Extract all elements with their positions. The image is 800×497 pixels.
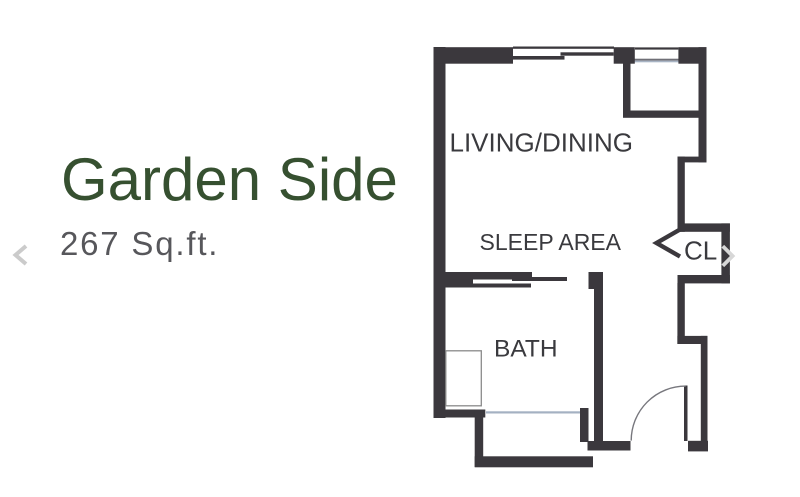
svg-text:267 Sq.ft.: 267 Sq.ft. <box>60 225 219 262</box>
svg-text:LIVING/DINING: LIVING/DINING <box>450 128 633 158</box>
svg-text:Garden Side: Garden Side <box>61 146 398 213</box>
svg-text:SLEEP AREA: SLEEP AREA <box>480 229 622 255</box>
svg-text:BATH: BATH <box>494 336 558 363</box>
svg-text:CL: CL <box>684 236 717 266</box>
